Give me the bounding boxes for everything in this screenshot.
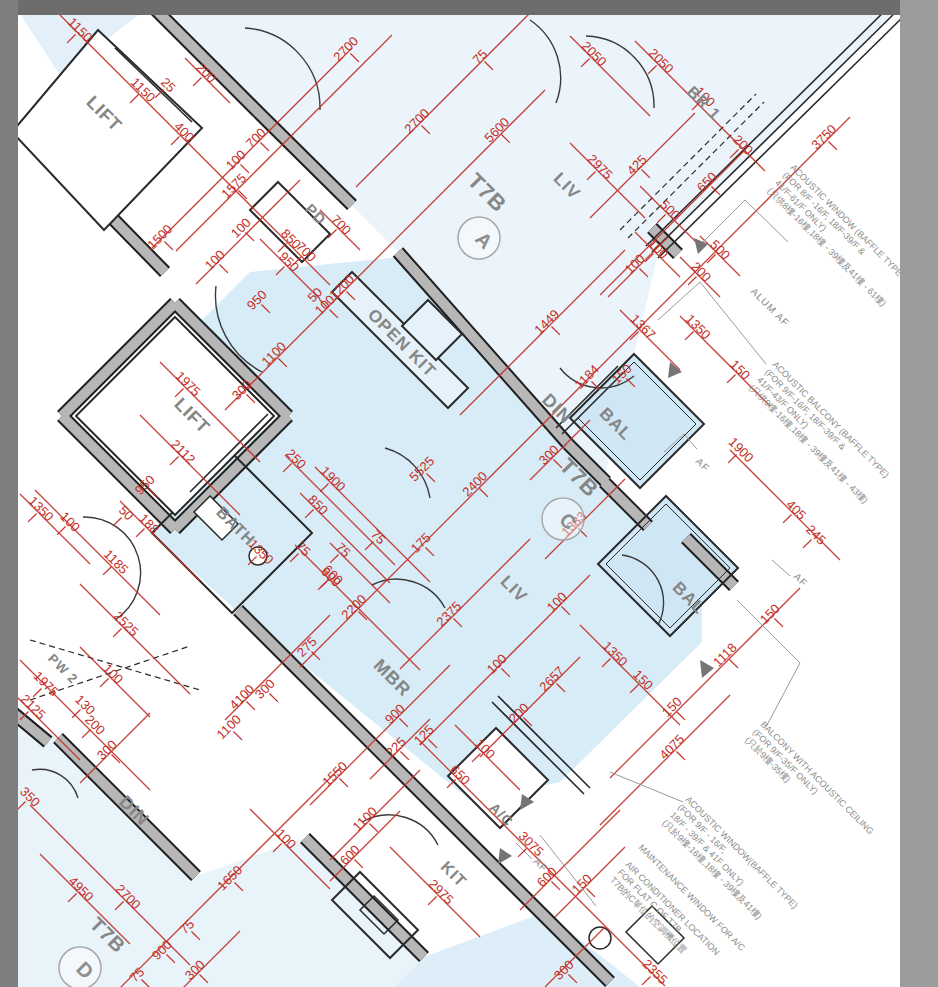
dimension-tick [774, 618, 782, 626]
dimension-tick [728, 454, 736, 462]
dimension-tick [428, 896, 436, 904]
dimension-tick [400, 751, 408, 759]
dimension-tick [28, 513, 36, 521]
viewer-frame-top [0, 0, 938, 15]
note-line: BALCONY WITH ACOUSTIC CEILING [759, 719, 876, 836]
dimension-tick [685, 331, 693, 339]
dimension-tick [729, 659, 737, 667]
dimension-tick [676, 751, 684, 759]
dimension-tick [245, 232, 253, 240]
dimension-tick [783, 514, 791, 522]
dimension-tick [828, 141, 836, 149]
dimension-tick [103, 566, 111, 574]
dimension-tick [33, 688, 41, 696]
viewer-frame-left [0, 0, 18, 987]
viewer-frame-right [900, 0, 938, 987]
dimension-tick [240, 164, 248, 172]
dimension-tick [369, 823, 377, 831]
dimension-tick [82, 729, 90, 737]
dimension-tick [551, 881, 559, 889]
dimension-tick [260, 142, 268, 150]
note-line: (FOR 9/F-35/F ONLY) [751, 727, 820, 796]
dimension-tick [246, 701, 254, 709]
floor-plan-page: 1150115025200400100700157510015002700270… [0, 0, 938, 987]
dimension-tick [113, 517, 121, 525]
dimension-tick [676, 711, 684, 719]
dimension-tick [100, 678, 108, 686]
dimension-tick [136, 528, 144, 536]
dimension-tick [193, 77, 201, 85]
dimension-tick [219, 264, 227, 272]
dimension-tick [233, 731, 241, 739]
dimension-tick [642, 976, 650, 984]
dimension-tick [339, 778, 347, 786]
af-annotation: AF [694, 456, 712, 474]
dimension-tick [803, 539, 811, 547]
af-annotation: AF [792, 571, 810, 589]
dimension-tick [269, 693, 277, 701]
af-annotation: ALUM AF [749, 286, 792, 329]
dimension-tick [727, 374, 735, 382]
dimension-tick [57, 526, 65, 534]
dimension-tick [354, 859, 362, 867]
floor-plan-drawing: 1150115025200400100700157510015002700270… [0, 0, 938, 987]
dimension-tick [164, 241, 172, 249]
dimension-tick [113, 628, 121, 636]
